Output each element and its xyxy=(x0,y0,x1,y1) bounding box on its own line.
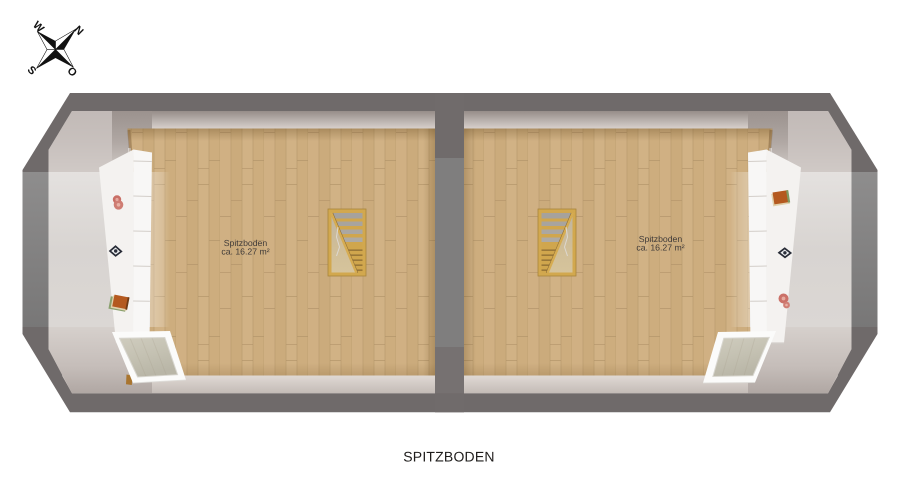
svg-text:ca. 16.27 m²: ca. 16.27 m² xyxy=(636,243,684,253)
svg-text:ca. 16.27 m²: ca. 16.27 m² xyxy=(221,247,269,257)
svg-text:SPITZBODEN: SPITZBODEN xyxy=(403,449,494,465)
